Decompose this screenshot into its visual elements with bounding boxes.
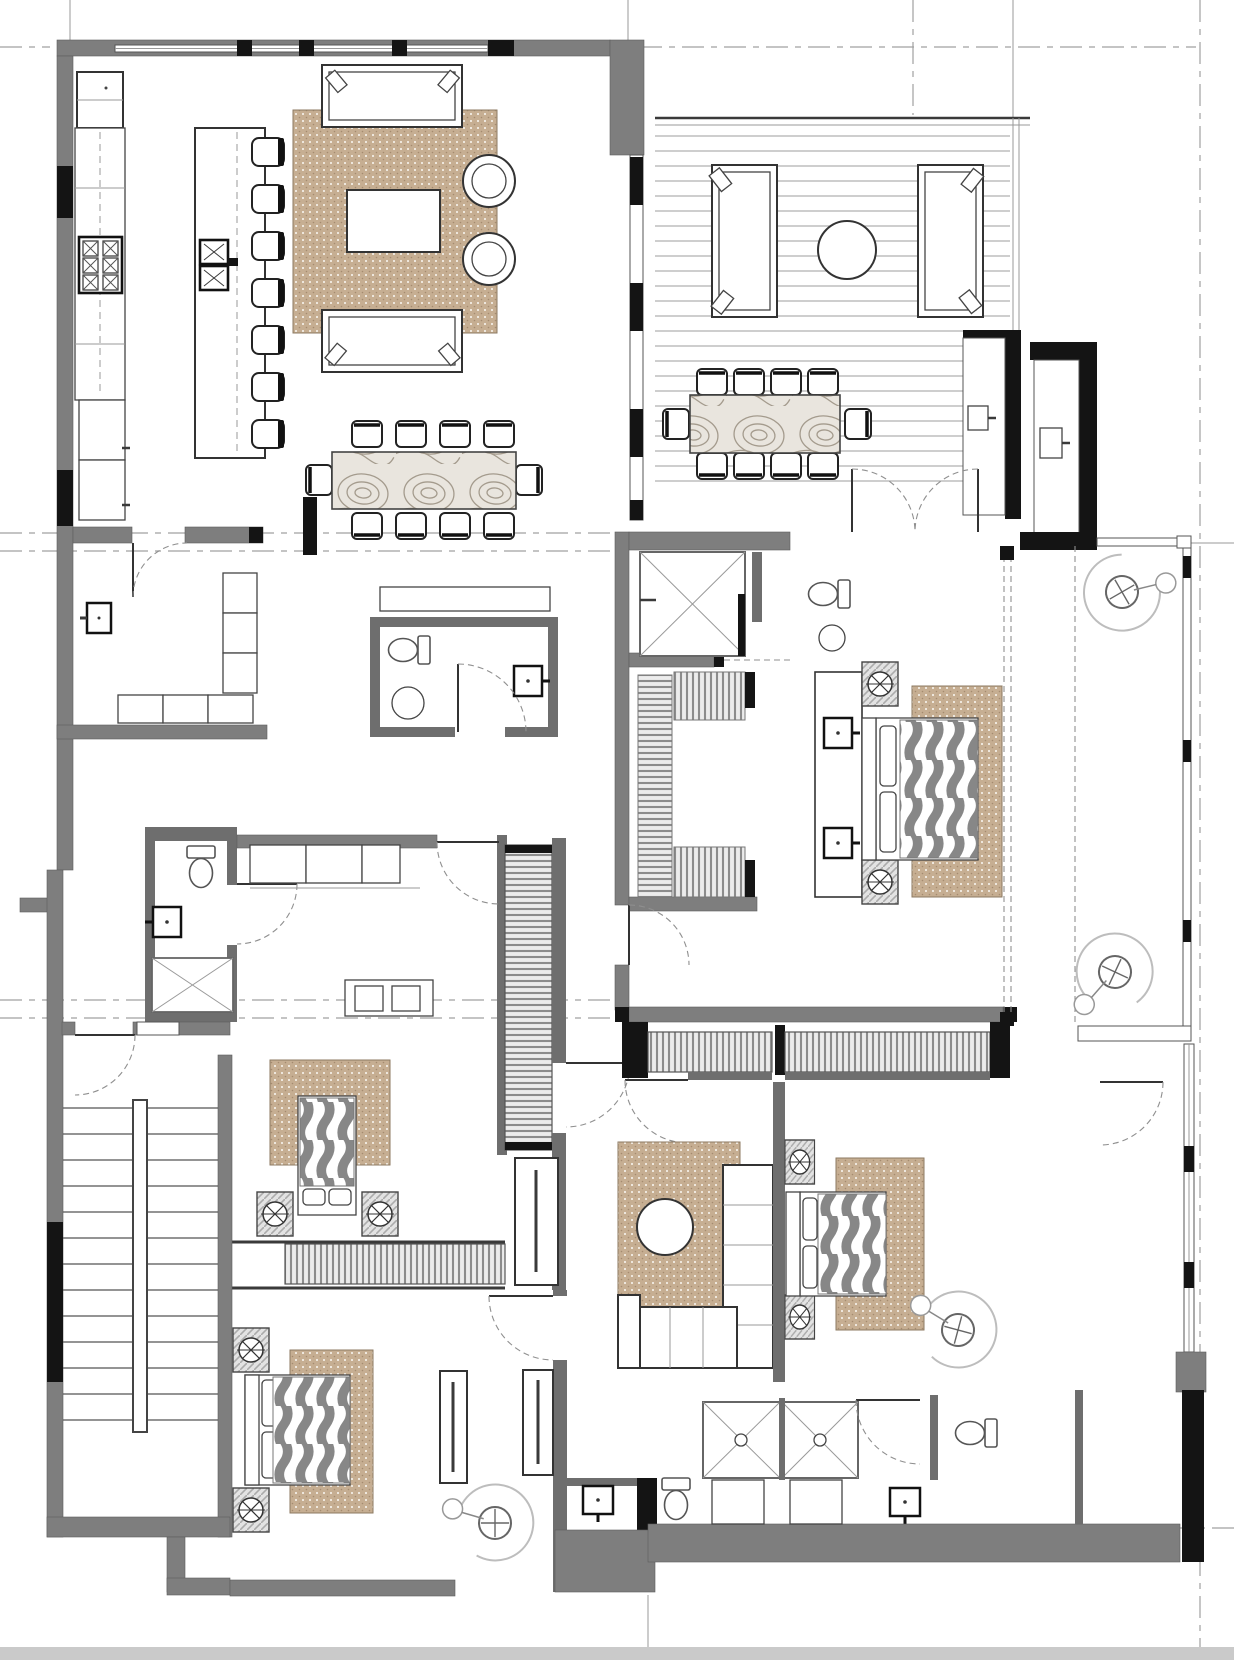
- master-suite: [615, 532, 1191, 1041]
- hanging-clothes-icon: [674, 672, 745, 720]
- living-room: [293, 65, 515, 372]
- dining-table: [332, 452, 516, 509]
- window-jamb-icon: [57, 166, 73, 218]
- nightstand-with-light: [362, 1192, 398, 1236]
- south-bathrooms: [555, 1390, 1204, 1592]
- hanging-clothes-icon: [638, 675, 672, 897]
- hanging-clothes-icon: [674, 847, 745, 897]
- vanity: [790, 1480, 842, 1524]
- wavy-quilt-icon: [300, 1098, 354, 1186]
- toilet: [662, 1478, 690, 1520]
- wavy-quilt-icon: [273, 1377, 350, 1483]
- built-in-cabinets: [250, 845, 420, 888]
- window-jamb-icon: [392, 40, 407, 56]
- outdoor-dining-table: [690, 395, 840, 453]
- wall-sink: [514, 666, 550, 696]
- bedroom-2: [230, 835, 552, 1288]
- porch-slab: [555, 1530, 655, 1592]
- toilet: [187, 846, 215, 888]
- master-balcony: [1055, 536, 1191, 1041]
- entry-foyer: [57, 497, 317, 739]
- double-vanity: [815, 672, 862, 897]
- base-cabinet: [79, 460, 125, 520]
- wardrobe-strip: [285, 1244, 505, 1284]
- nightstand-with-light: [785, 1295, 815, 1339]
- window-jamb-icon: [57, 470, 73, 526]
- hanging-clothes-icon: [648, 1032, 772, 1072]
- floor-plan-drawing: [0, 0, 1234, 1660]
- round-outdoor-table: [818, 221, 876, 279]
- toilet: [956, 1419, 998, 1447]
- round-basin: [819, 625, 845, 651]
- nightstand-with-light: [862, 860, 898, 904]
- bedroom-4: [785, 1044, 1206, 1392]
- master-bathroom: [640, 552, 850, 656]
- lounge-chair-icon: [1055, 923, 1163, 1023]
- hanging-clothes-icon: [785, 1032, 990, 1072]
- wall-sink: [890, 1488, 920, 1524]
- master-walk-in-closet: [638, 672, 755, 897]
- window-jamb-icon: [237, 40, 252, 56]
- nightstand-with-light: [785, 1140, 815, 1184]
- handrail: [133, 1100, 147, 1432]
- toilet: [389, 636, 431, 664]
- console: [380, 587, 550, 611]
- base-cabinet: [79, 400, 125, 460]
- lounge-chair-icon: [1075, 547, 1179, 642]
- nightstand-with-light: [233, 1488, 269, 1532]
- scan-band: [0, 1647, 1234, 1660]
- window-jamb-icon: [47, 1222, 63, 1382]
- coat-closet-shelving: [118, 573, 257, 723]
- vanity: [712, 1480, 764, 1524]
- family-room: [618, 1080, 785, 1382]
- kitchen: [75, 72, 284, 520]
- bar-stools: [252, 138, 284, 448]
- range-6-burner: [79, 237, 122, 293]
- wavy-quilt-icon: [900, 720, 978, 858]
- covered-terrace: [655, 118, 1097, 538]
- powder-room: [370, 587, 558, 737]
- hanging-clothes-icon: [505, 845, 552, 1150]
- nightstand-with-light: [257, 1192, 293, 1236]
- round-coffee-table: [637, 1199, 693, 1255]
- dining-area: [306, 421, 542, 539]
- window-jamb-icon: [488, 40, 514, 56]
- nightstand-with-light: [233, 1328, 269, 1372]
- laundry-basin: [583, 1486, 613, 1522]
- toilet: [809, 580, 851, 608]
- french-door-swing-icon: [852, 469, 978, 532]
- hallway: [515, 838, 1010, 1475]
- wavy-quilt-icon: [818, 1194, 886, 1294]
- floor-plan-canvas: [0, 0, 1234, 1660]
- storage-niche: [1030, 342, 1097, 538]
- round-basin: [392, 687, 424, 719]
- outdoor-dining-set: [663, 369, 871, 479]
- nightstand-with-light: [862, 662, 898, 706]
- coffee-table: [347, 190, 440, 252]
- window-jamb-icon: [299, 40, 314, 56]
- bedroom-3: [230, 1290, 567, 1596]
